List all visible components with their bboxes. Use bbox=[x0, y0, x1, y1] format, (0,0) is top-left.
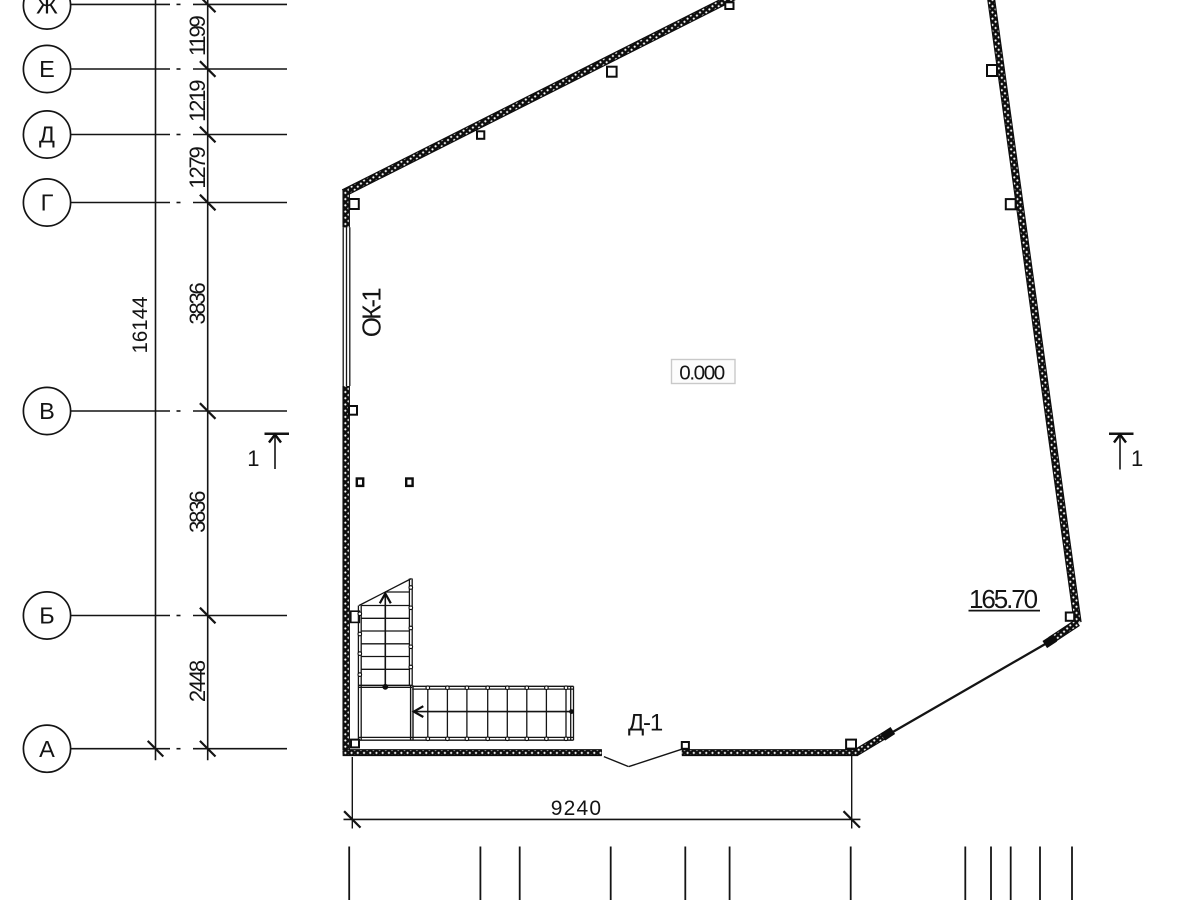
svg-text:1219: 1219 bbox=[185, 80, 210, 122]
svg-text:1: 1 bbox=[247, 446, 259, 471]
svg-text:0.000: 0.000 bbox=[679, 362, 724, 385]
svg-text:В: В bbox=[39, 398, 55, 424]
svg-text:165.70: 165.70 bbox=[969, 584, 1038, 614]
svg-text:2448: 2448 bbox=[185, 660, 210, 702]
svg-text:16144: 16144 bbox=[129, 296, 152, 353]
svg-text:Е: Е bbox=[39, 56, 55, 82]
svg-text:Б: Б bbox=[39, 603, 54, 629]
svg-text:ОК-1: ОК-1 bbox=[356, 288, 386, 337]
svg-text:1199: 1199 bbox=[185, 15, 210, 55]
svg-text:9240: 9240 bbox=[551, 797, 603, 820]
svg-text:1: 1 bbox=[1131, 446, 1143, 471]
svg-text:Д: Д bbox=[39, 122, 55, 148]
svg-text:1279: 1279 bbox=[185, 146, 210, 188]
svg-text:Ж: Ж bbox=[36, 0, 58, 19]
svg-text:Д-1: Д-1 bbox=[628, 710, 663, 737]
svg-text:Г: Г bbox=[41, 190, 54, 216]
svg-text:3836: 3836 bbox=[185, 282, 210, 324]
svg-text:3836: 3836 bbox=[185, 491, 210, 533]
svg-text:А: А bbox=[39, 736, 55, 762]
